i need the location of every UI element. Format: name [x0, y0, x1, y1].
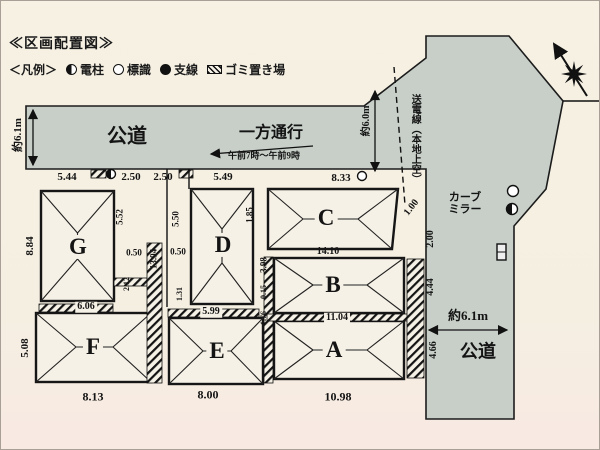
hatch-strip-vertical-left: [147, 243, 162, 383]
hatch-strip-above-f: [39, 304, 113, 312]
legend: ＜凡例＞ 電柱標識支線ゴミ置き場: [9, 61, 285, 78]
hatch-strip-above-e: [168, 309, 259, 317]
lot-b: [274, 258, 404, 313]
legend-items: 電柱標識支線ゴミ置き場: [66, 61, 285, 78]
lot-g: [41, 191, 114, 301]
road-sign-icon: [113, 64, 124, 75]
roadside-box-symbol: [497, 244, 506, 260]
site-plan-page: 5.442.502.505.498.3314.1011.0410.988.008…: [0, 0, 600, 450]
hatch-strip-b-a: [267, 314, 423, 321]
mirror-sign-symbol: [508, 186, 519, 197]
legend-label: ＜凡例＞: [9, 61, 57, 78]
legend-item-garbage-area: ゴミ置き場: [207, 61, 285, 78]
utility-pole-icon: [66, 64, 77, 75]
garbage-marker-2: [179, 170, 193, 178]
garbage-area-icon: [207, 65, 222, 74]
lot-a: [274, 321, 404, 379]
legend-item-label: 電柱: [80, 61, 104, 78]
pole-symbol-top: [107, 170, 116, 179]
legend-item-label: ゴミ置き場: [225, 61, 285, 78]
lot-d: [191, 189, 253, 304]
legend-item-road-sign: 標識: [113, 61, 151, 78]
legend-item-label: 標識: [127, 61, 151, 78]
garbage-marker-1: [91, 170, 106, 178]
legend-item-guy-wire: 支線: [160, 61, 198, 78]
guy-wire-icon: [160, 64, 171, 75]
compass-north: [554, 44, 587, 96]
lot-c: [268, 189, 398, 249]
legend-item-label: 支線: [174, 61, 198, 78]
mirror-pole-symbol: [507, 204, 518, 215]
lot-f: [36, 313, 151, 382]
lot-e: [169, 318, 263, 384]
hatch-strip-right: [407, 259, 424, 378]
sign-symbol-top: [358, 172, 367, 181]
access-strip-lines: [167, 169, 189, 307]
legend-item-utility-pole: 電柱: [66, 61, 104, 78]
page-title: ≪区画配置図≫: [9, 33, 114, 53]
hatch-strip-corner: [114, 278, 147, 286]
